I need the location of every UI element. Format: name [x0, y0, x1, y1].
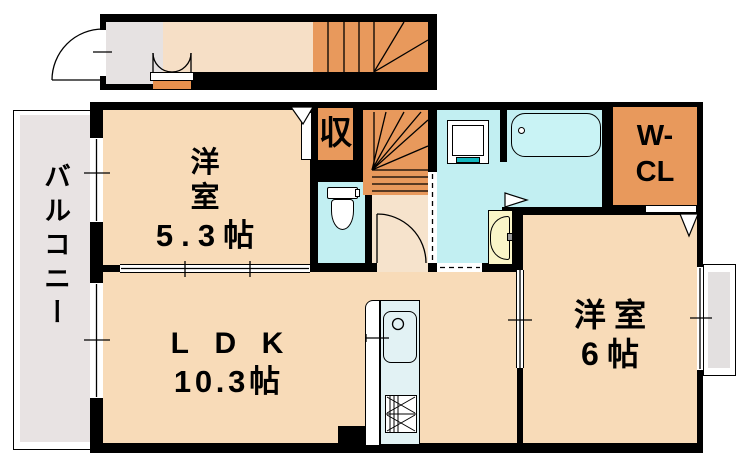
wcl-line2: CL: [613, 154, 697, 190]
toilet-tank: [327, 187, 358, 199]
staircase-1f: [313, 22, 428, 72]
window-western-room-1: [90, 138, 103, 222]
western-room-1-size: 5.3帖: [105, 217, 305, 255]
window-ldk: [90, 283, 103, 398]
washer-drum: [452, 125, 484, 156]
western-room-2-name: 洋室: [523, 296, 697, 335]
hall-door-opening: [377, 263, 428, 272]
bathroom-wall-segment: [500, 110, 507, 162]
balcony-label-text: バルコニー: [40, 162, 70, 332]
closet-label-text: 収: [319, 114, 352, 151]
ldk-name: LDK: [118, 326, 336, 363]
floor-plan: バルコニー: [0, 0, 744, 476]
wcl-line1: W-: [613, 118, 697, 154]
hall-washroom-opening: [428, 172, 437, 263]
washbasin-tap: [507, 233, 513, 241]
hall-floor: [372, 195, 428, 263]
western-room-1-label: 洋室 5.3帖: [105, 146, 305, 255]
kitchen-sink: [383, 311, 417, 363]
room2-balcony-floor: [708, 272, 730, 368]
kitchen-stove: [385, 395, 417, 433]
shoe-cabinet: [153, 81, 191, 89]
western-room-2-size: 6帖: [523, 335, 697, 374]
kitchen-side-counter: [365, 300, 380, 445]
entrance-door-opening: [100, 30, 106, 76]
western-room-1-name: 洋室: [105, 146, 305, 217]
wcl-door-track: [645, 205, 697, 213]
ldk-label: LDK 10.3帖: [118, 326, 336, 400]
ldk-wall-stub: [338, 426, 365, 443]
bathtub-drain: [518, 127, 525, 134]
bathtub: [511, 113, 601, 157]
staircase-2f: [363, 110, 428, 195]
closet-label: 収: [318, 113, 353, 153]
western-room-2-label: 洋室 6帖: [523, 296, 697, 374]
room1-ldk-sliding-door: [120, 264, 310, 273]
washer-teal-strip: [456, 157, 480, 163]
balcony-label: バルコニー: [36, 162, 75, 412]
toilet-tank-knob: [355, 189, 360, 197]
walk-in-closet-label: W- CL: [613, 118, 697, 191]
shoe-cabinet-top: [150, 72, 194, 81]
washroom-ldk-opening: [437, 263, 482, 272]
ldk-size: 10.3帖: [118, 363, 336, 401]
corridor-1f-floor: [163, 22, 313, 72]
